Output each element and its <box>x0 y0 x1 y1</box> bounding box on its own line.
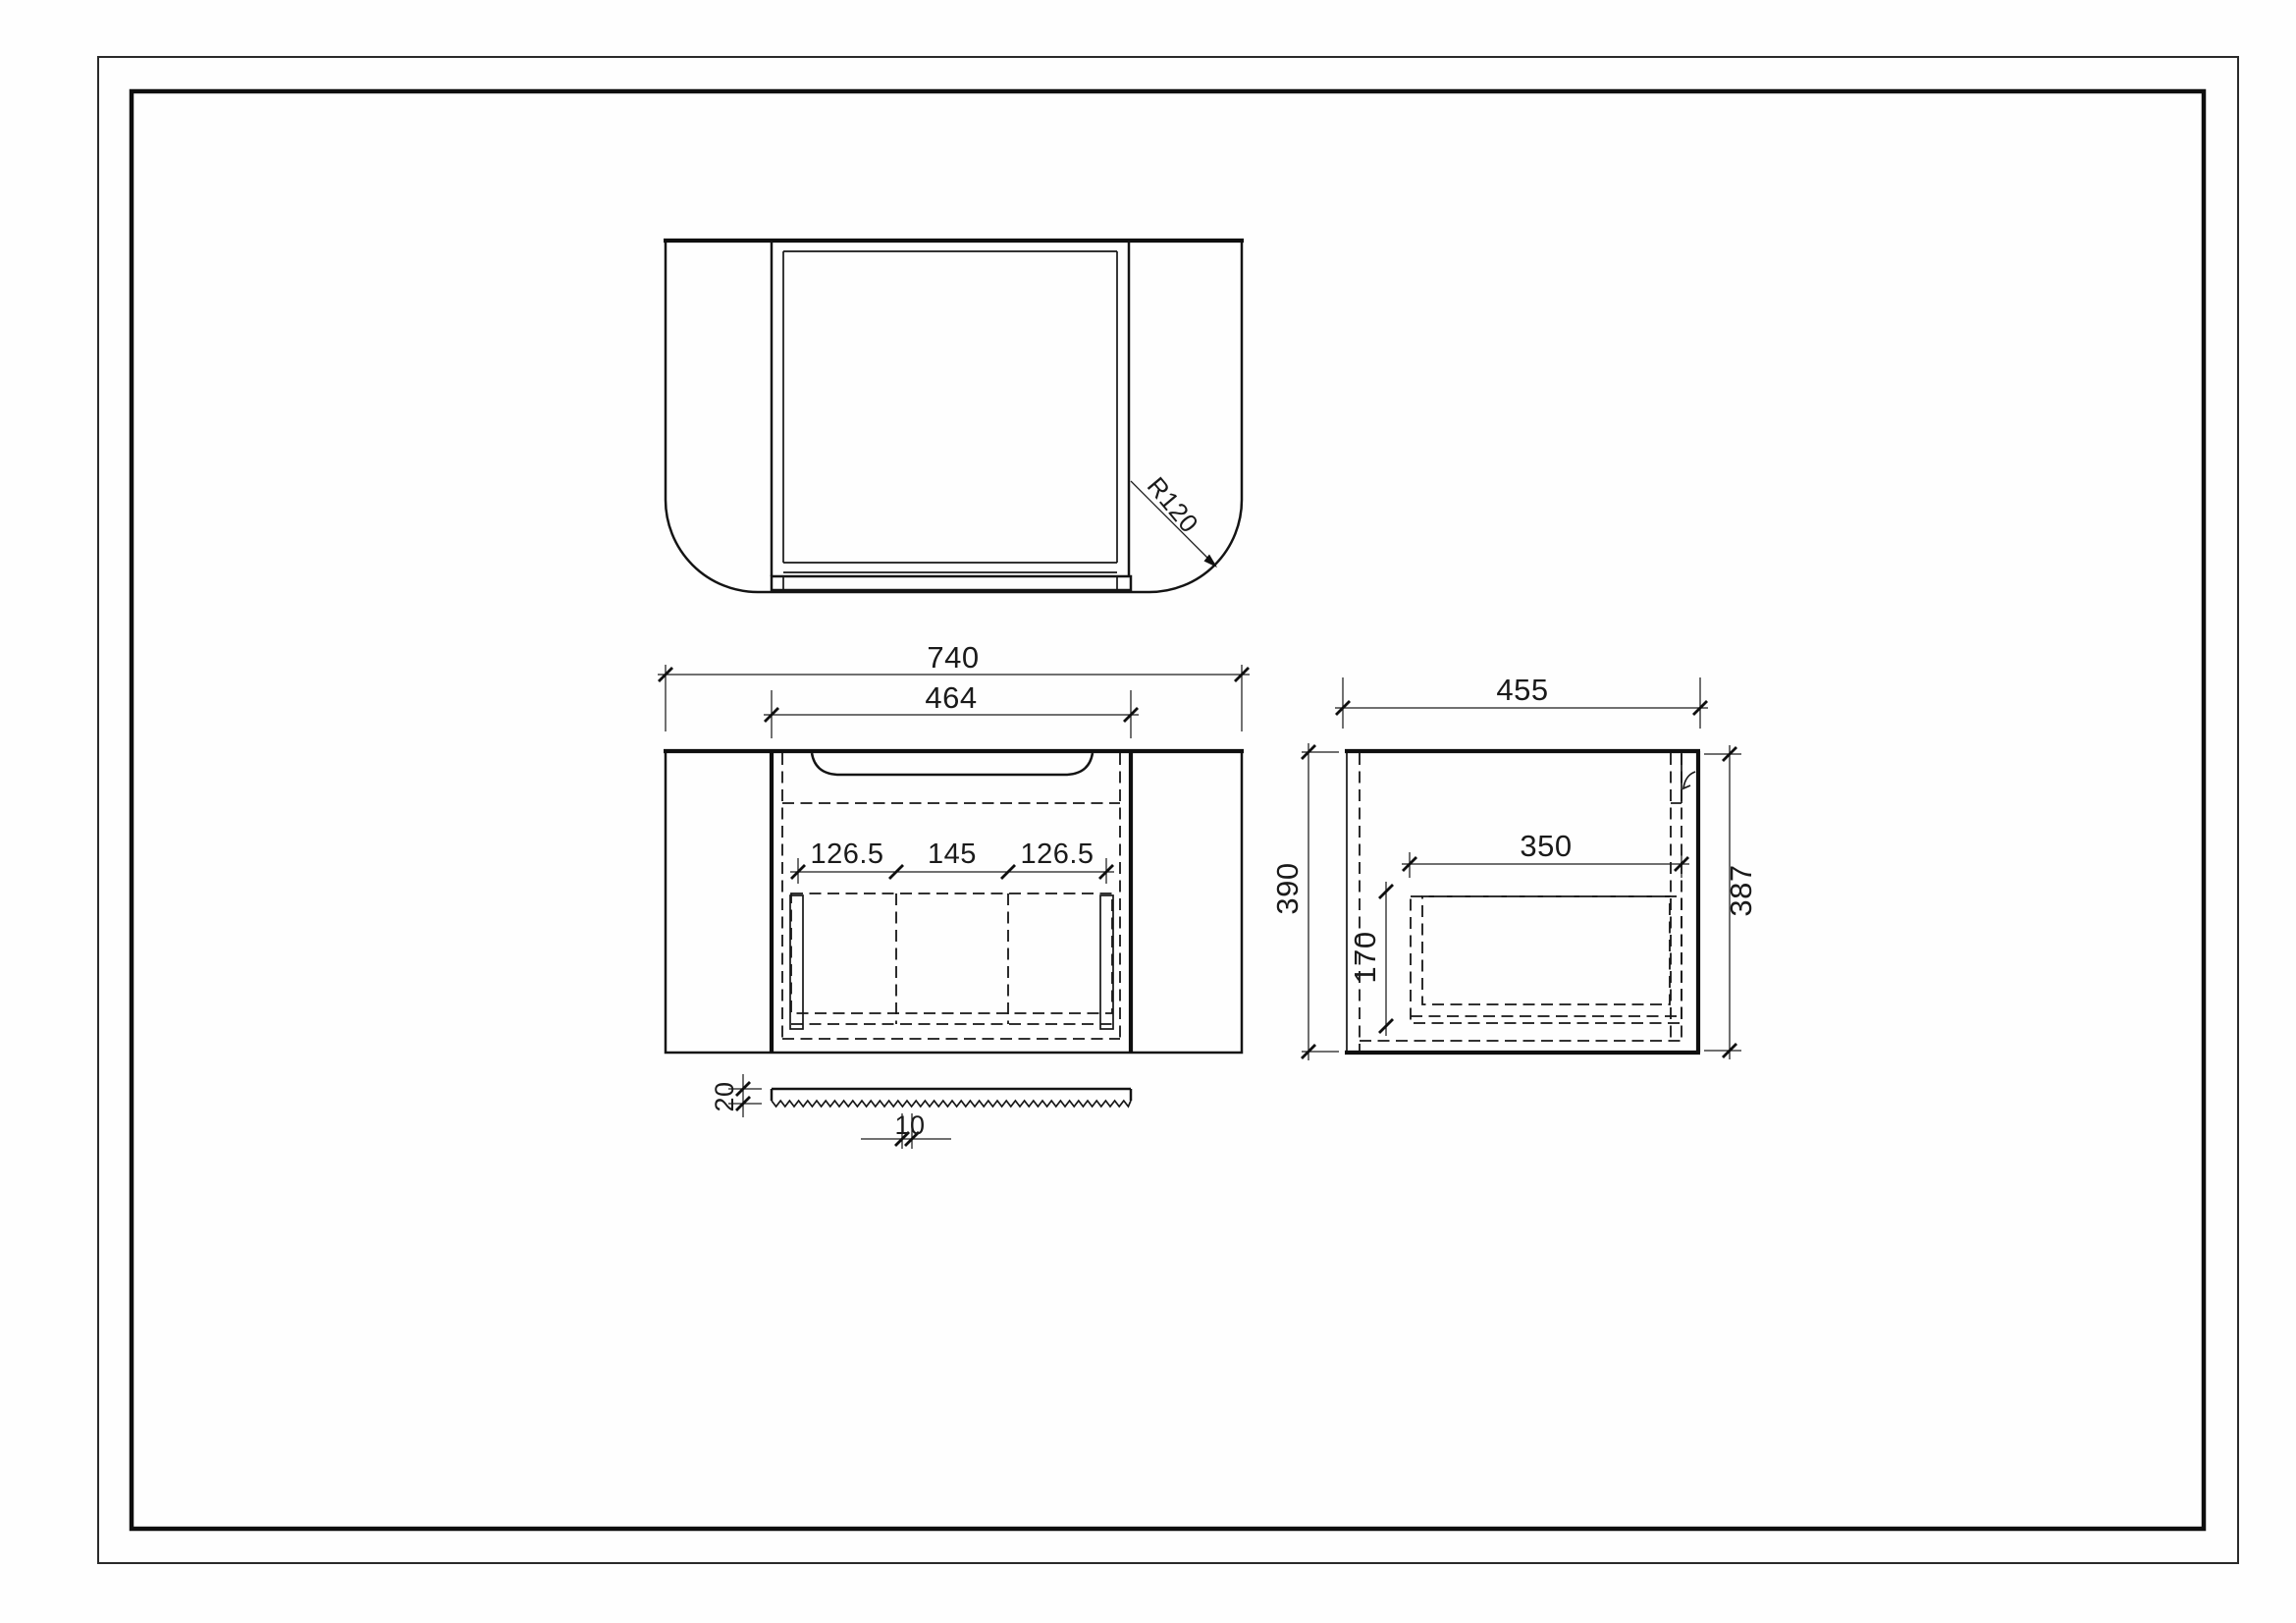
dim-strip-thickness: 20 <box>710 1074 762 1117</box>
strip-detail: 20 10 <box>710 1074 1131 1149</box>
dim-390-label: 390 <box>1270 862 1305 914</box>
handle-recess <box>812 753 1093 775</box>
outer-border <box>98 57 2238 1563</box>
front-hidden-lines <box>782 753 1120 1039</box>
dim-170-label: 170 <box>1348 931 1382 983</box>
dim-740-label: 740 <box>927 640 979 675</box>
front-view-outline <box>666 751 1242 1053</box>
dim-drawer-widths: 126.5 145 126.5 <box>790 839 1114 884</box>
front-view: 740 464 126.5 145 126.5 <box>658 640 1250 1053</box>
bracket-cam-arc <box>1683 772 1695 788</box>
dim-145-label: 145 <box>928 839 977 870</box>
top-view-front-strip <box>772 576 1131 590</box>
dim-464-label: 464 <box>925 680 977 715</box>
dim-350-label: 350 <box>1520 829 1572 863</box>
dim-body-width: 464 <box>764 680 1139 738</box>
radius-callout: R120 <box>1131 471 1217 568</box>
front-right-slide-bracket <box>1100 895 1113 1029</box>
dim-387-label: 387 <box>1724 864 1758 916</box>
side-view: 455 390 387 350 <box>1270 673 1758 1060</box>
dim-126-left-label: 126.5 <box>810 839 883 870</box>
drawing-canvas: R120 740 <box>0 0 2296 1623</box>
side-hidden-lines <box>1360 753 1682 1051</box>
dim-20-label: 20 <box>710 1081 739 1111</box>
sheet-border <box>98 57 2238 1563</box>
top-view-outline <box>666 241 1242 592</box>
front-left-slide-bracket <box>790 895 803 1029</box>
side-drawer-inner-hidden <box>1422 896 1670 1004</box>
dim-height-left: 390 <box>1270 743 1339 1060</box>
dim-126-right-label: 126.5 <box>1020 839 1094 870</box>
dim-drawer-height: 170 <box>1348 882 1393 1036</box>
dim-455-label: 455 <box>1496 673 1548 707</box>
front-drawer-box-hidden <box>791 893 1112 1013</box>
radius-label: R120 <box>1142 471 1204 538</box>
dim-height-right: 387 <box>1704 745 1758 1059</box>
hanging-bracket-detail <box>1671 754 1695 803</box>
dim-tooth-width: 10 <box>861 1110 951 1149</box>
top-view: R120 <box>664 241 1244 592</box>
dim-drawer-depth: 350 <box>1402 829 1689 878</box>
inner-border <box>132 91 2204 1529</box>
drawing-sheet: R120 740 <box>0 0 2296 1623</box>
strip-serrated-edge <box>772 1101 1131 1107</box>
dim-10-label: 10 <box>894 1110 925 1140</box>
dim-depth: 455 <box>1335 673 1708 729</box>
